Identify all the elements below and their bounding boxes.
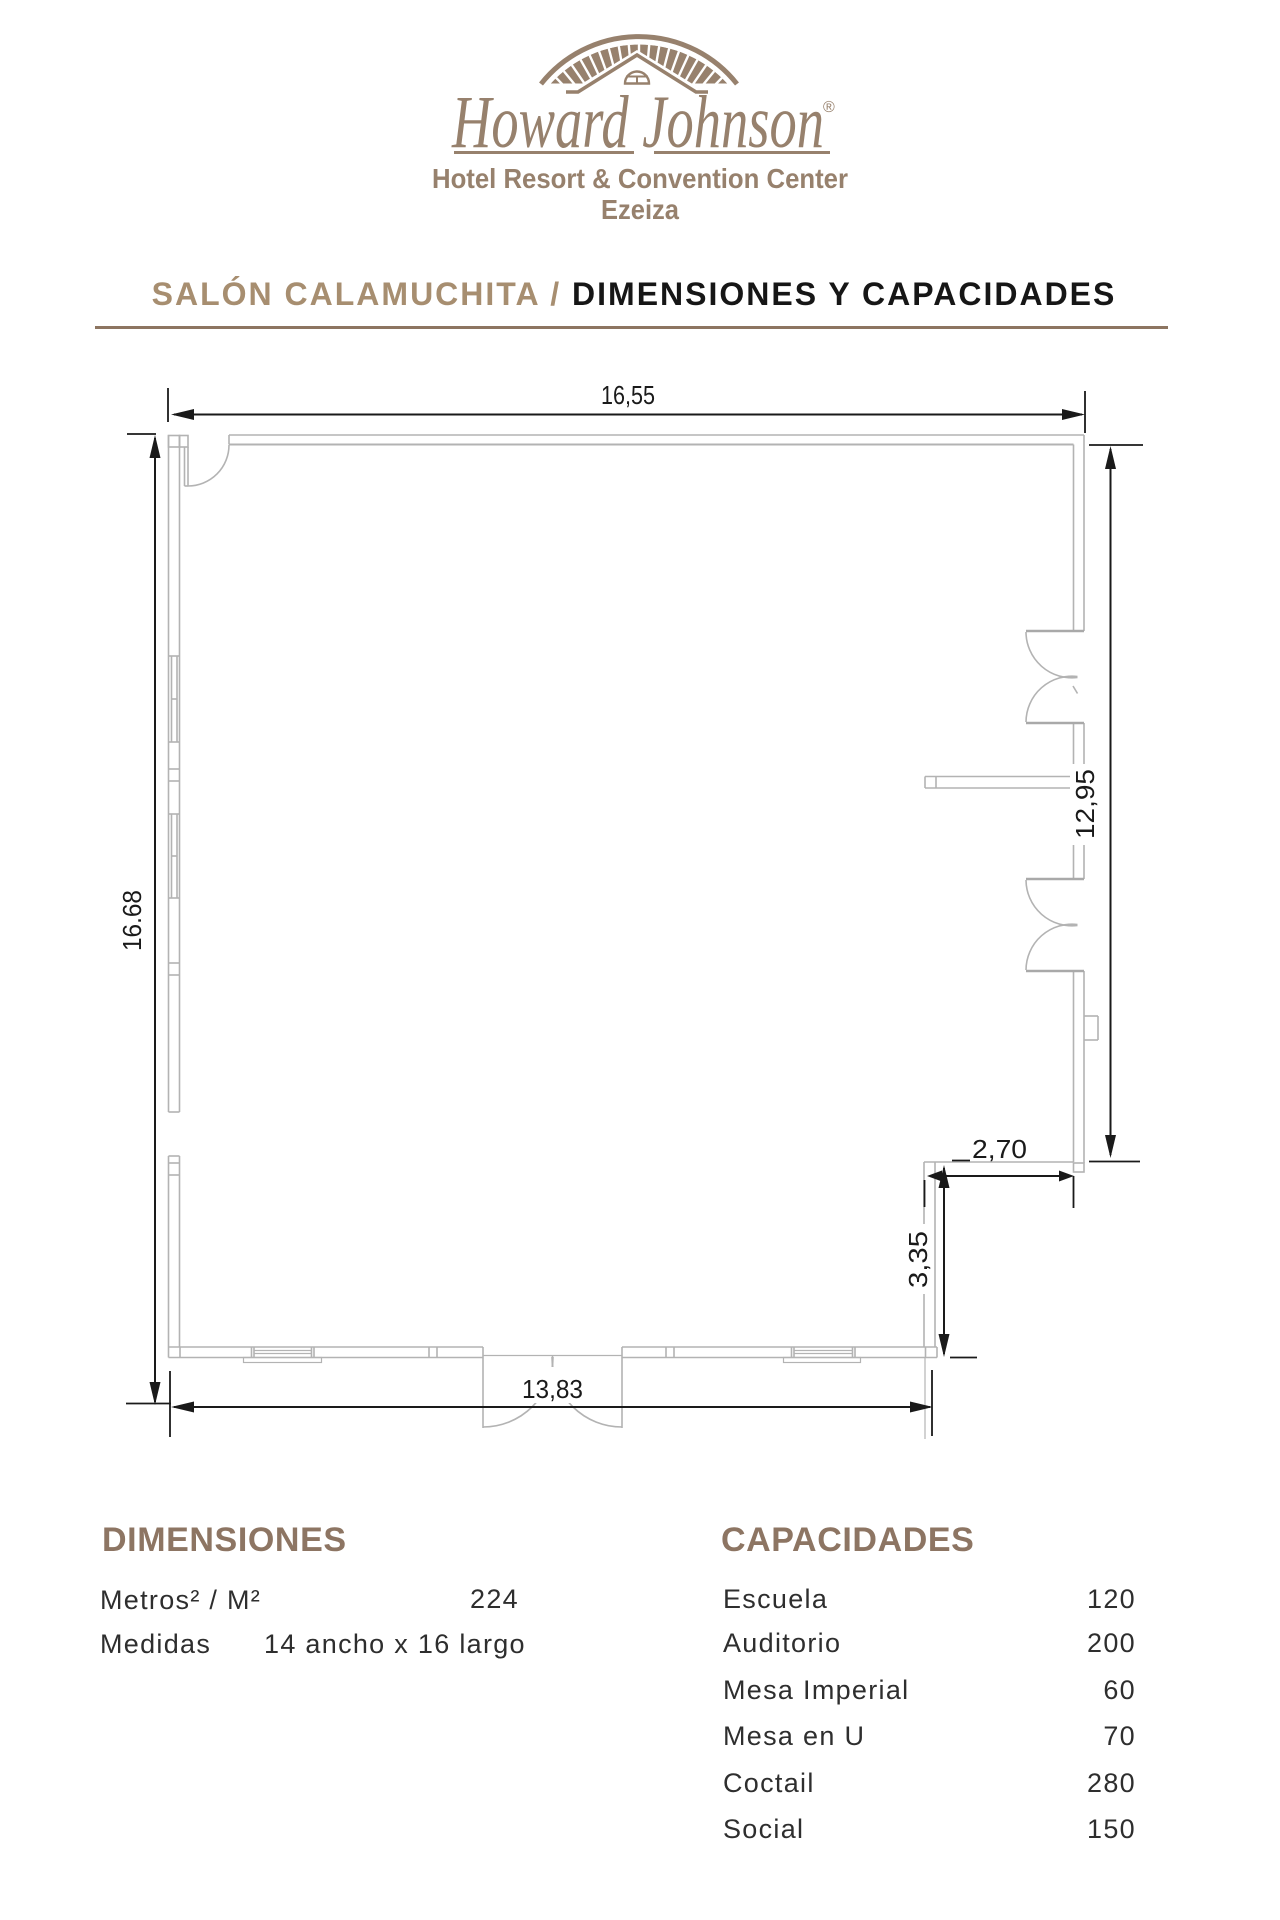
svg-text:3,35: 3,35: [903, 1231, 933, 1288]
svg-text:12,95: 12,95: [1070, 769, 1100, 839]
svg-text:2,70: 2,70: [972, 1134, 1027, 1164]
svg-text:16.68: 16.68: [117, 890, 147, 951]
svg-text:16,55: 16,55: [601, 380, 655, 410]
svg-text:13,83: 13,83: [522, 1374, 583, 1404]
